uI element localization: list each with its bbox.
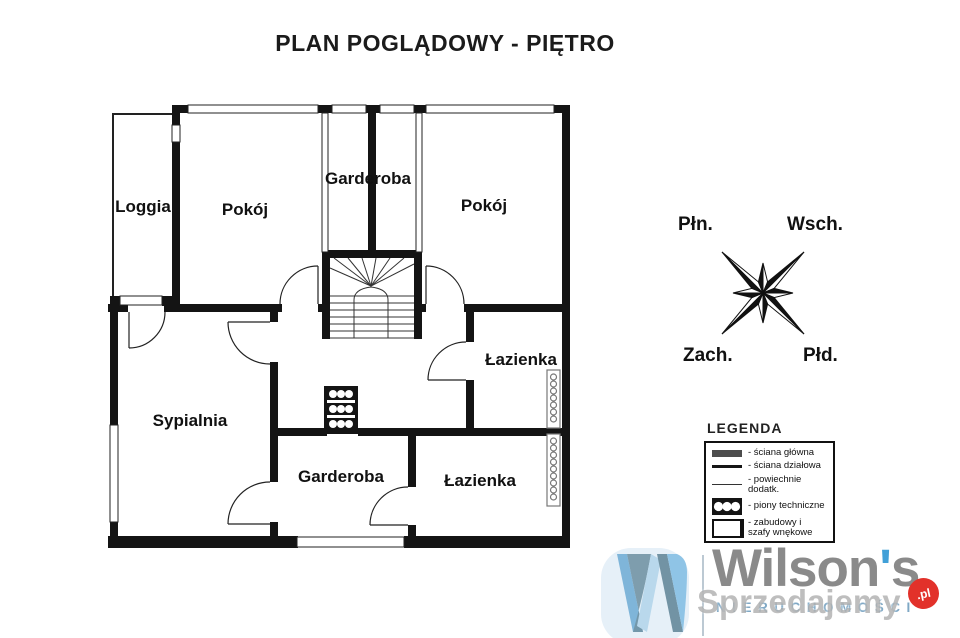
compass-label-north: Płn. — [678, 214, 713, 236]
compass-label-south: Płd. — [803, 345, 838, 367]
wilsons-logo-icon — [599, 548, 691, 638]
staircase-icon — [330, 258, 414, 338]
compass-rose-icon — [693, 223, 833, 363]
legend-item-partition-wall: - ściana działowa — [712, 461, 829, 471]
partition-wall-icon — [712, 465, 744, 468]
room-label-lazienka-lower: Łazienka — [444, 471, 516, 491]
legend-item-additional-area: - powiechnie dodatk. — [712, 475, 829, 495]
room-label-sypialnia: Sypialnia — [153, 411, 228, 431]
room-label-pokoj-right: Pokój — [461, 196, 507, 216]
legend-item-main-wall: - ściana główna — [712, 448, 829, 458]
technical-shaft-legend-icon — [712, 498, 744, 515]
shaft-strips — [547, 370, 560, 506]
compass-label-west: Zach. — [683, 345, 733, 367]
room-label-garderoba-top: Garderoba — [325, 169, 411, 189]
built-in-wardrobe-icon — [712, 519, 744, 538]
additional-area-line-icon — [712, 484, 744, 486]
room-label-loggia: Loggia — [115, 197, 171, 217]
compass-label-east: Wsch. — [787, 214, 843, 236]
room-label-pokoj-left: Pokój — [222, 200, 268, 220]
page: PLAN POGLĄDOWY - PIĘTRO — [0, 0, 960, 638]
room-label-garderoba-bottom: Garderoba — [298, 467, 384, 487]
legend-title: LEGENDA — [707, 420, 782, 436]
legend-item-built-in: - zabudowy i szafy wnękowe — [712, 518, 829, 538]
watermark-text: Sprzedajemy — [697, 583, 901, 621]
legend-box: - ściana główna - ściana działowa - powi… — [704, 441, 835, 543]
main-wall-icon — [712, 450, 744, 457]
room-label-lazienka-upper: Łazienka — [485, 350, 557, 370]
legend-item-technical-shaft: - piony techniczne — [712, 498, 829, 515]
technical-shaft-icon — [324, 386, 358, 434]
